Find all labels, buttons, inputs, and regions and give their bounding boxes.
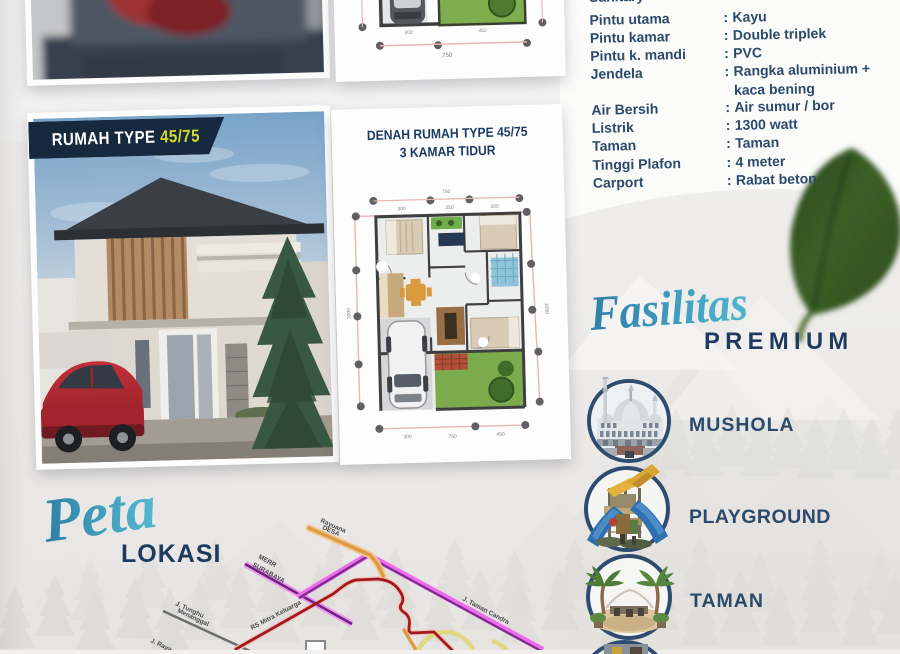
- svg-text:300: 300: [490, 204, 499, 210]
- svg-text:750: 750: [442, 53, 453, 59]
- svg-text:1000: 1000: [543, 303, 549, 314]
- svg-text:300: 300: [397, 206, 406, 212]
- svg-text:450: 450: [478, 28, 487, 34]
- svg-text:300: 300: [404, 30, 413, 36]
- svg-text:250: 250: [445, 205, 454, 211]
- svg-text:450: 450: [496, 432, 505, 438]
- svg-text:1000: 1000: [346, 308, 352, 319]
- svg-text:300: 300: [403, 434, 412, 440]
- svg-text:J. Raya: J. Raya: [149, 637, 173, 650]
- svg-text:750: 750: [442, 189, 451, 195]
- svg-text:750: 750: [448, 434, 457, 440]
